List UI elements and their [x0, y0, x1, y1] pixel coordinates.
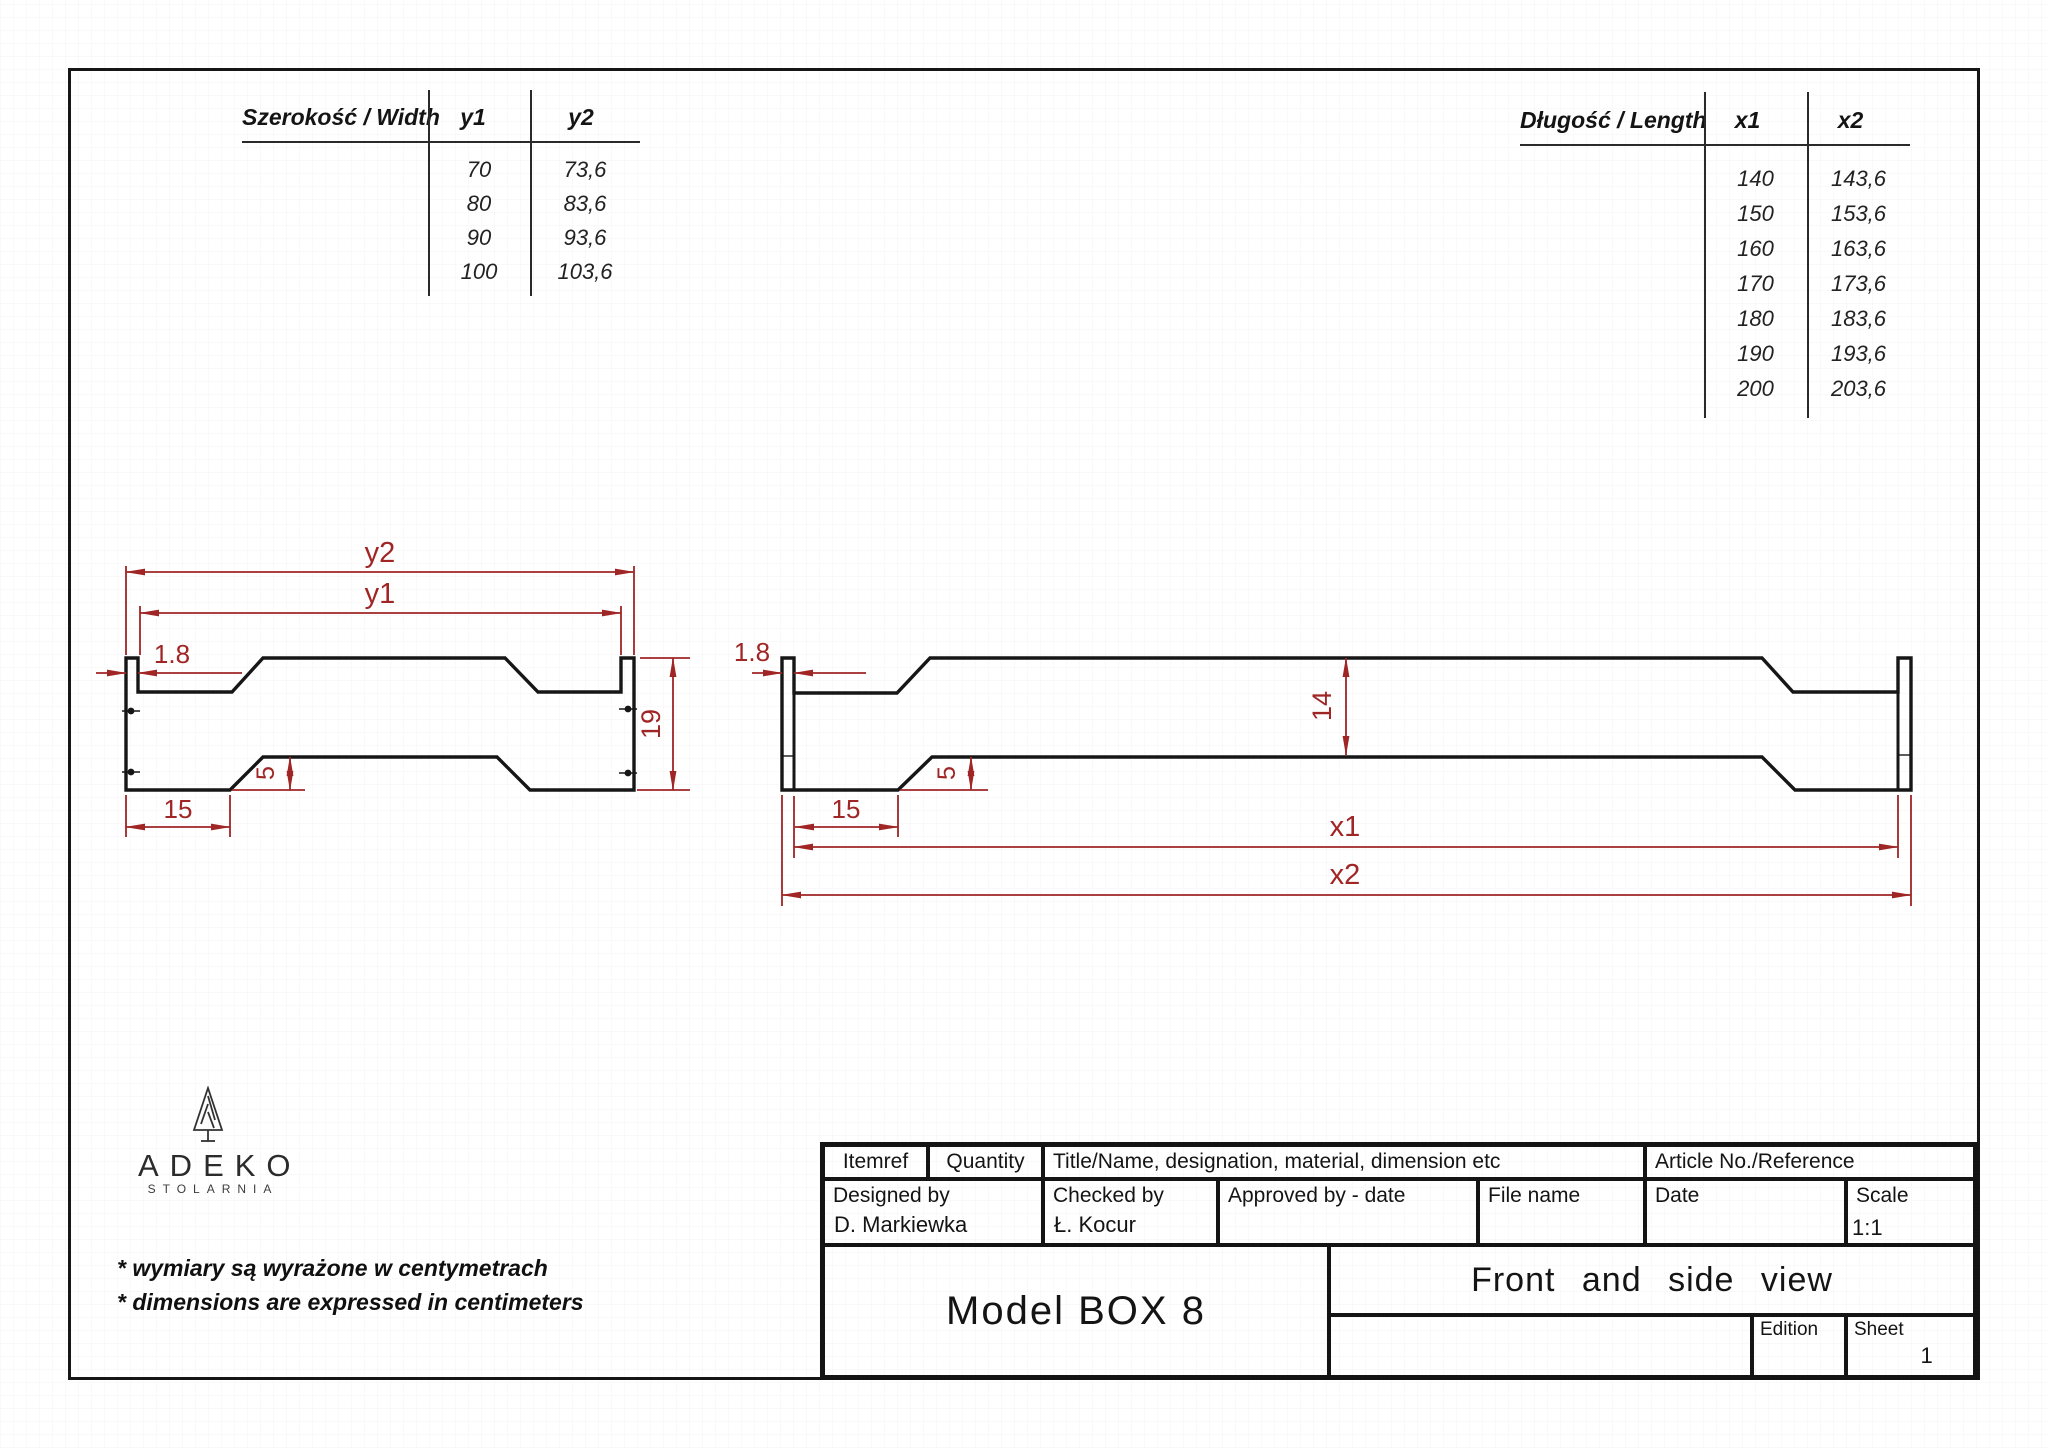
title-block: Itemref Quantity Title/Name, designation…: [820, 1142, 1978, 1380]
date-label: Date: [1647, 1181, 1844, 1208]
logo-wordmark: ADEKO: [138, 1148, 288, 1184]
front-dim-notch: 5: [252, 766, 280, 780]
logo-subtitle: STOLARNIA: [138, 1182, 288, 1196]
tree-icon: [188, 1086, 228, 1146]
side-dim-notch: 5: [933, 766, 961, 780]
front-dim-height: 19: [636, 709, 666, 739]
titleblock-title-name: Title/Name, designation, material, dimen…: [1043, 1145, 1645, 1179]
checked-by-value: Ł. Kocur: [1054, 1212, 1136, 1238]
front-dim-tab: 1.8: [154, 639, 190, 669]
sheet-label: Sheet: [1848, 1317, 1973, 1341]
sheet-value: 1: [1921, 1343, 1933, 1369]
side-dim-foot: 15: [832, 794, 861, 824]
front-view-drawing: y2 y1 1.8 19 5 15: [96, 537, 690, 837]
titleblock-designed-by-cell: Designed by D. Markiewka: [823, 1179, 1043, 1245]
model-name: Model BOX 8: [823, 1245, 1329, 1377]
titleblock-date-cell: Date: [1645, 1179, 1846, 1245]
titleblock-file-name-cell: File name: [1478, 1179, 1645, 1245]
scale-label: Scale: [1848, 1181, 1973, 1208]
side-dim-height: 14: [1307, 691, 1337, 721]
note-centimeters-pl: * wymiary są wyrażone w centymetrach: [117, 1255, 548, 1282]
file-name-label: File name: [1480, 1181, 1643, 1208]
titleblock-itemref: Itemref: [823, 1145, 928, 1179]
designed-by-value: D. Markiewka: [834, 1212, 967, 1238]
side-dim-x1: x1: [1330, 811, 1361, 843]
scale-value: 1:1: [1852, 1215, 1883, 1241]
side-view-drawing: 1.8 14 5 15 x1 x2: [734, 637, 1911, 906]
front-dim-y1: y1: [365, 578, 396, 610]
front-view-outline: [126, 658, 634, 790]
titleblock-quantity: Quantity: [928, 1145, 1043, 1179]
titleblock-checked-by-cell: Checked by Ł. Kocur: [1043, 1179, 1218, 1245]
checked-by-label: Checked by: [1045, 1181, 1216, 1208]
front-dim-foot: 15: [164, 794, 193, 824]
titleblock-article: Article No./Reference: [1645, 1145, 1975, 1179]
edition-label: Edition: [1752, 1315, 1846, 1377]
note-centimeters-en: * dimensions are expressed in centimeter…: [117, 1289, 584, 1316]
approved-by-label: Approved by - date: [1220, 1181, 1476, 1208]
side-dim-tab: 1.8: [734, 637, 770, 667]
titleblock-scale-cell: Scale 1:1: [1846, 1179, 1975, 1245]
designed-by-label: Designed by: [825, 1181, 1041, 1208]
drawing-view-title: Front and side view: [1329, 1245, 1975, 1315]
front-dim-y2: y2: [365, 537, 396, 569]
titleblock-approved-by-cell: Approved by - date: [1218, 1179, 1478, 1245]
titleblock-empty-cell: [1329, 1315, 1752, 1377]
titleblock-sheet-cell: Sheet 1: [1846, 1315, 1975, 1377]
side-dim-x2: x2: [1330, 859, 1361, 891]
